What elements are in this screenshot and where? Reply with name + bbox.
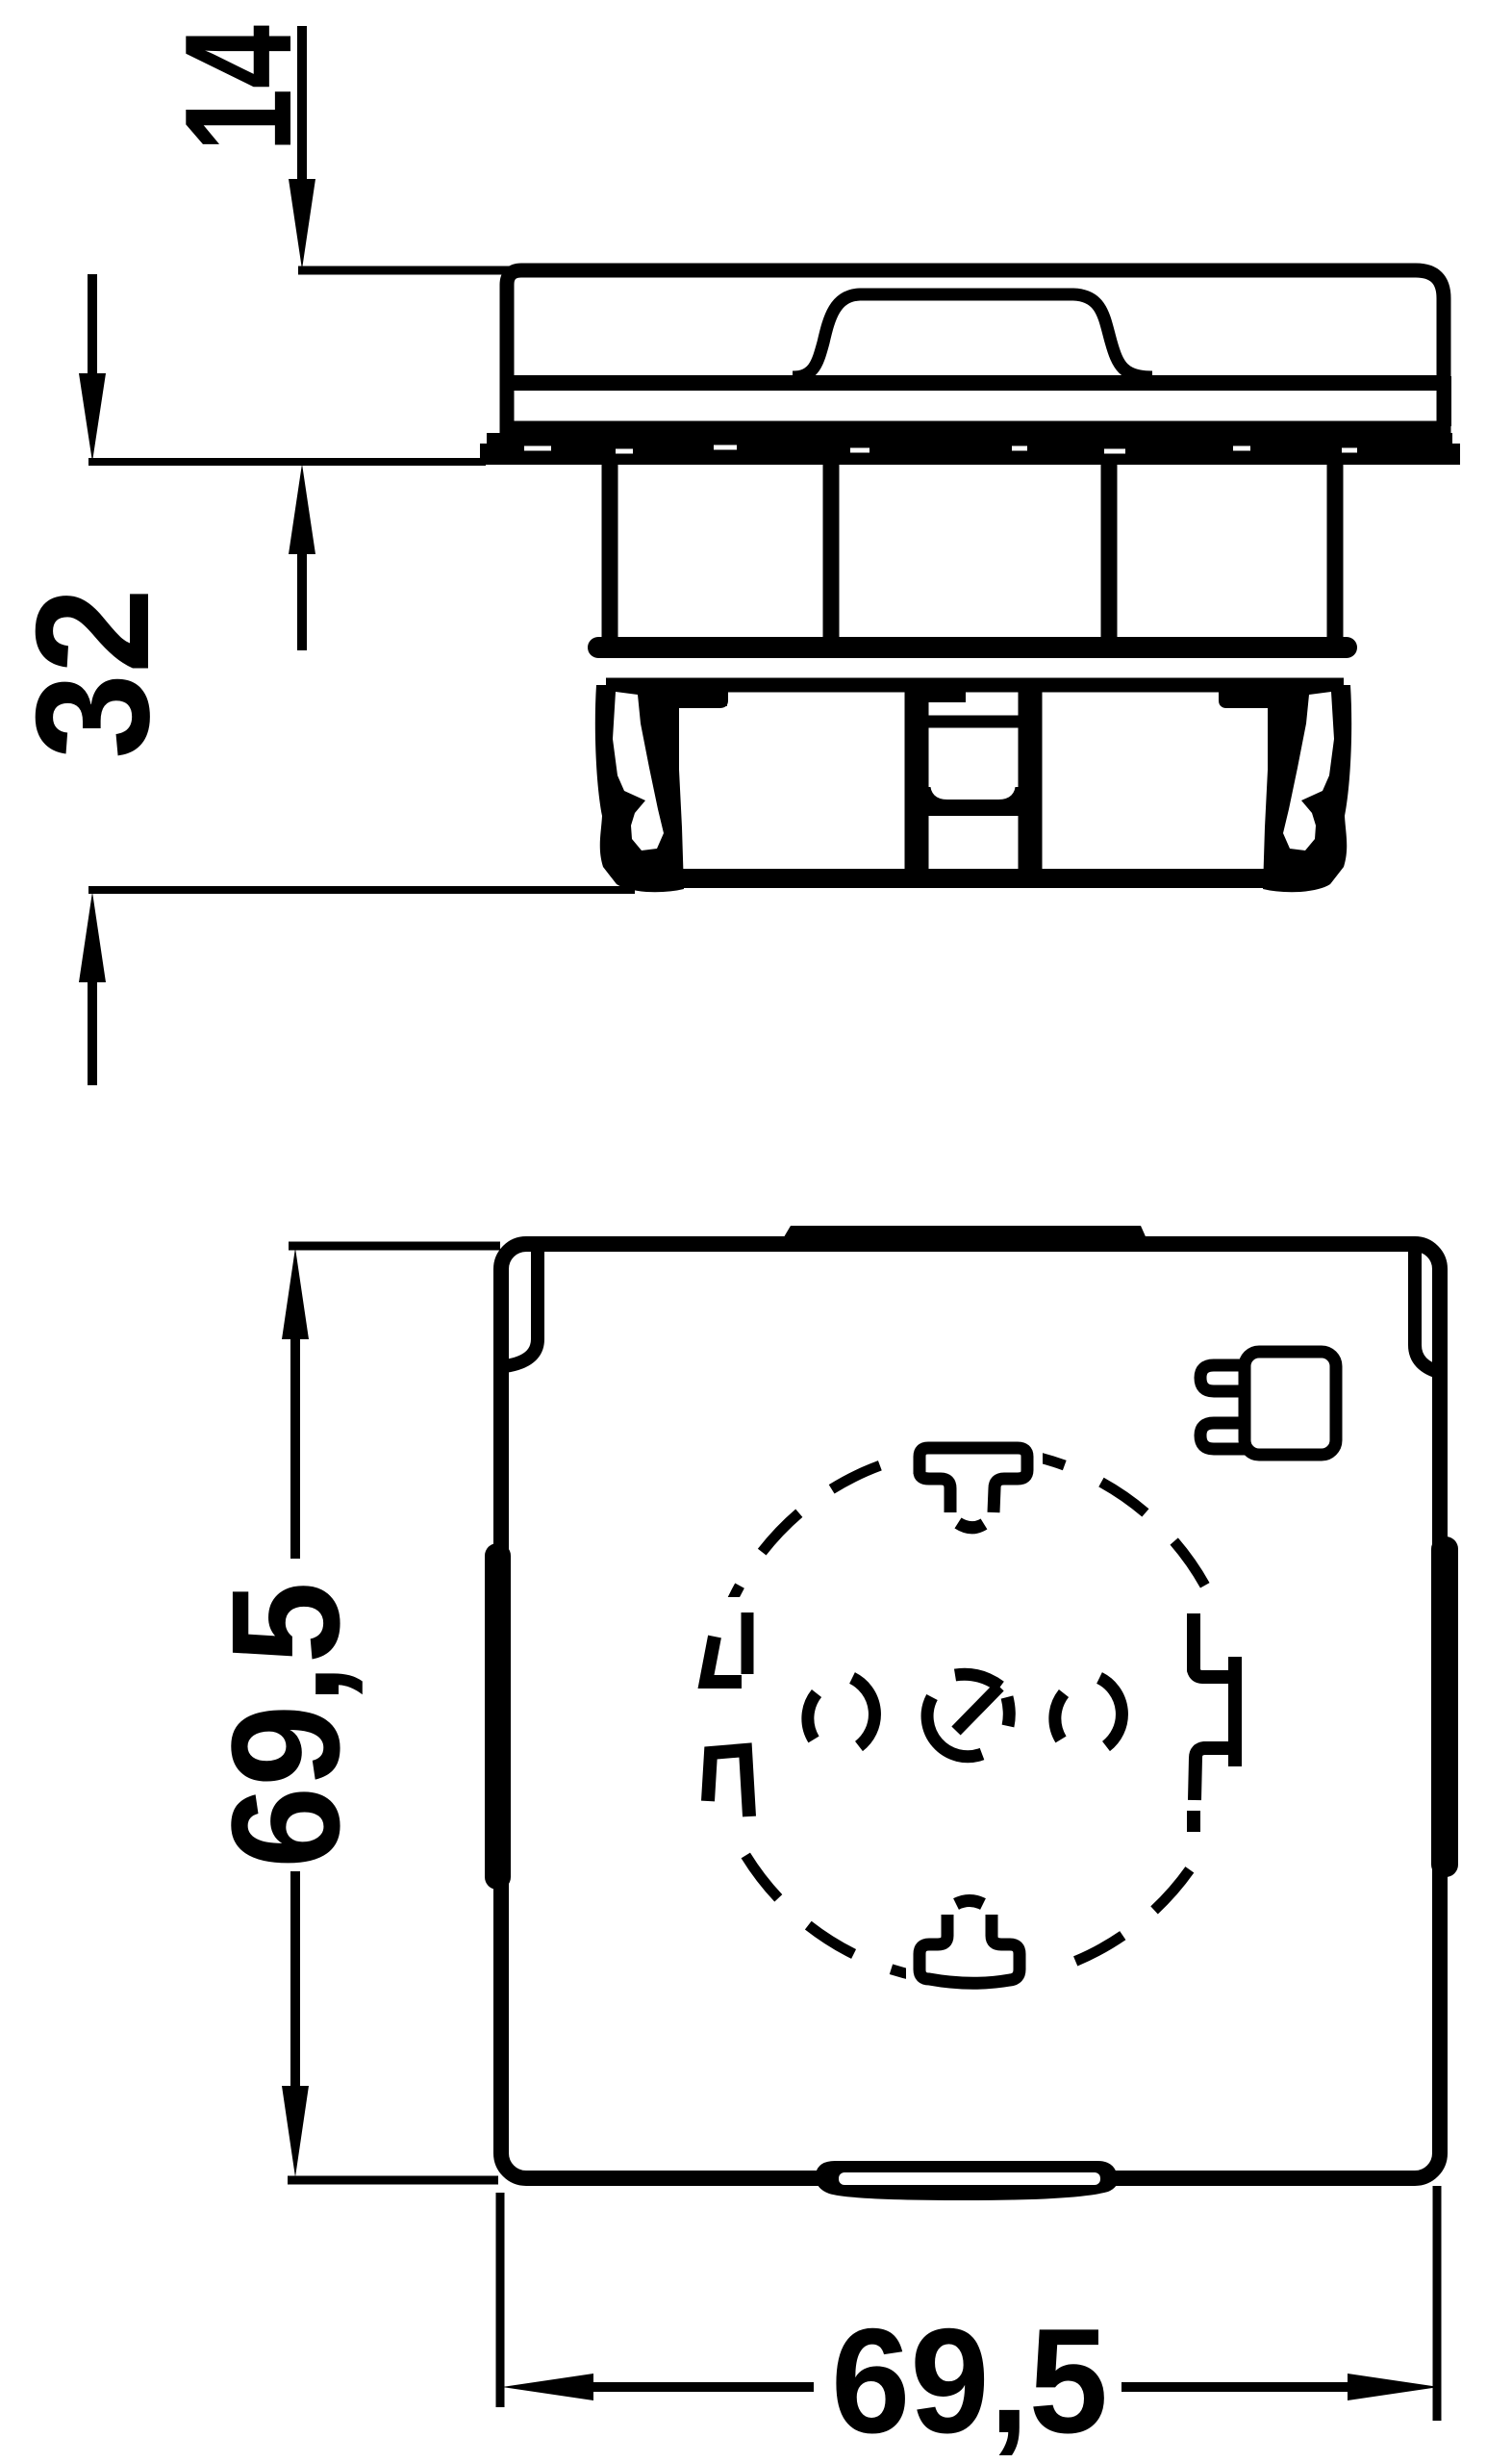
svg-text:69,5: 69,5 <box>199 1582 371 1868</box>
svg-text:69,5: 69,5 <box>831 2298 1108 2463</box>
svg-text:32: 32 <box>2 588 183 759</box>
